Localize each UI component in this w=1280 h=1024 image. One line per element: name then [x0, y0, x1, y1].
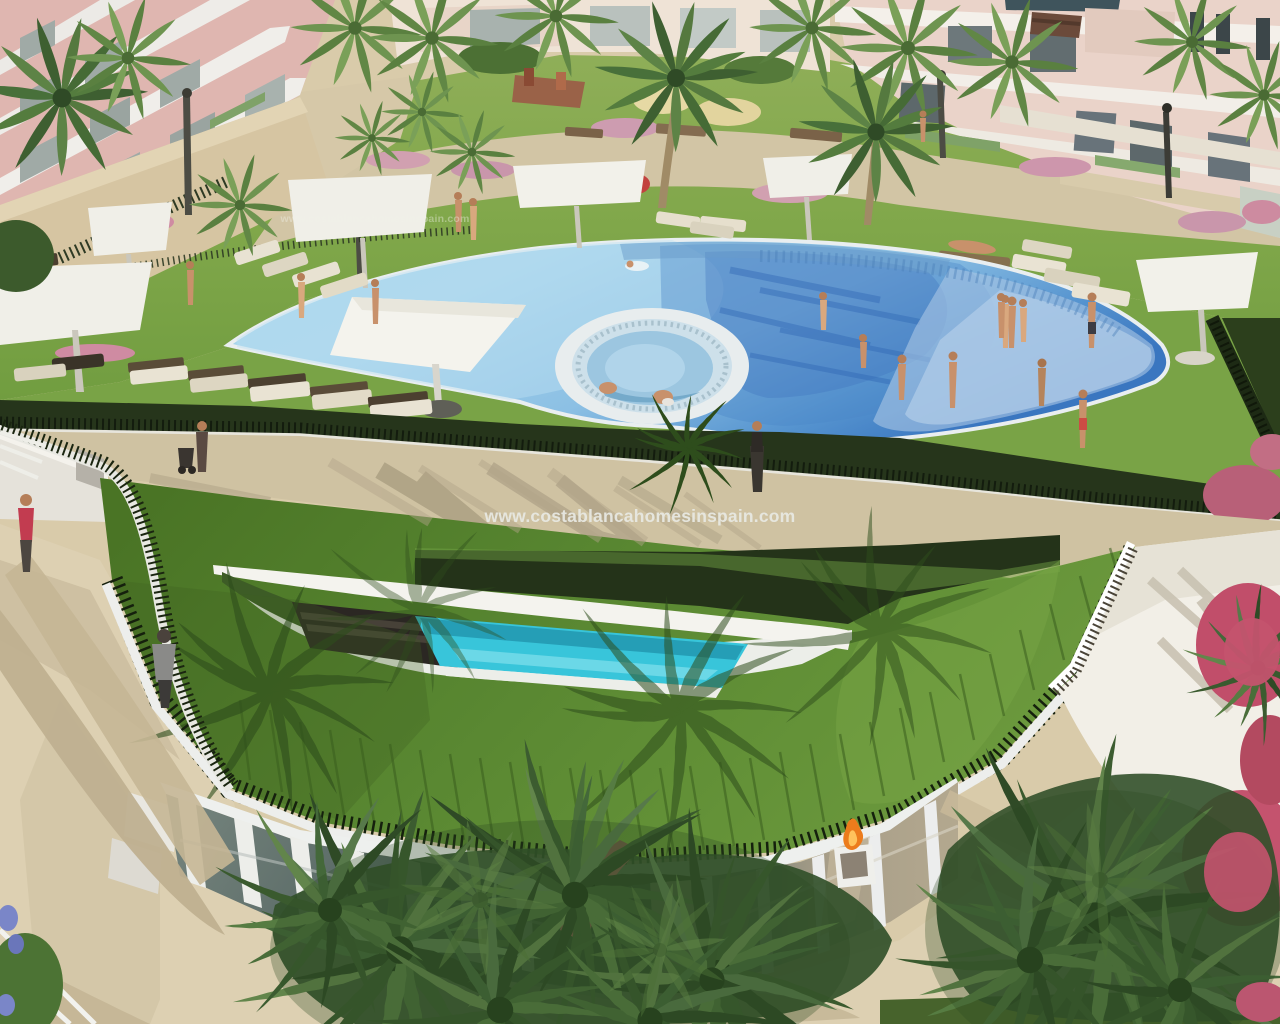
svg-text:www.costablancahomesinspain.co: www.costablancahomesinspain.com — [484, 506, 796, 526]
svg-text:www.costablancahomesinspain.co: www.costablancahomesinspain.com — [279, 213, 469, 225]
